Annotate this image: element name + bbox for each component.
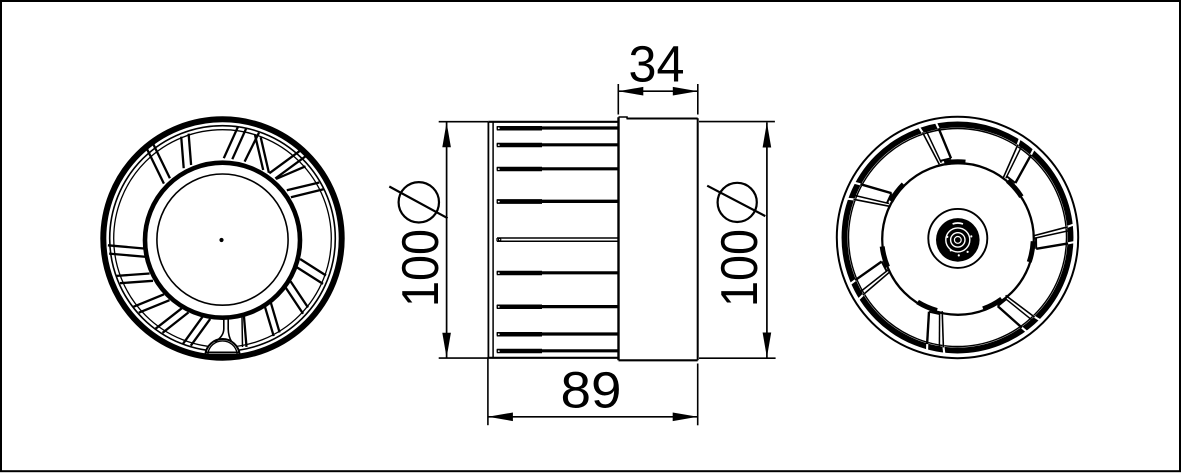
svg-text:89: 89 [561,362,622,419]
svg-text:100: 100 [711,229,769,307]
svg-text:100: 100 [392,229,450,307]
svg-text:34: 34 [629,35,685,92]
